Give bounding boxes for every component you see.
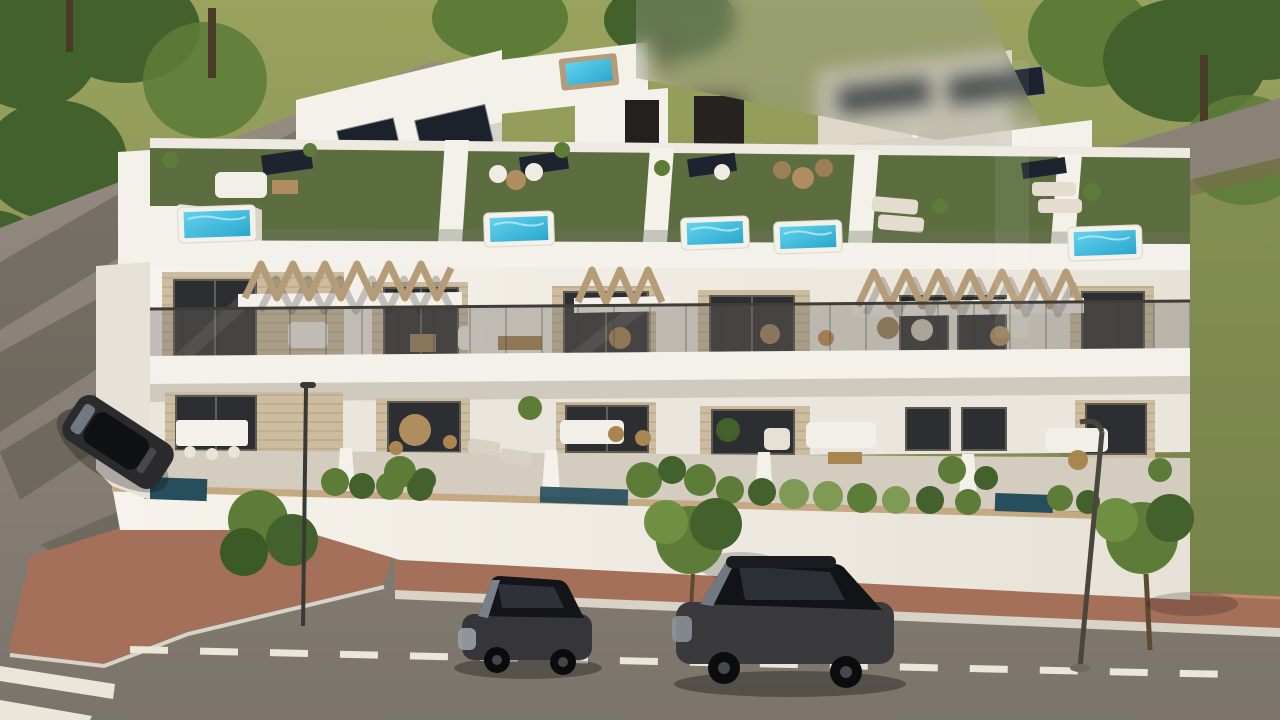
rattan-chair [773, 161, 791, 179]
potted-plant [554, 142, 570, 158]
potted-plant [932, 198, 948, 214]
spa-pool [483, 211, 554, 247]
car-side-windows [498, 584, 564, 608]
tree-trunk [208, 8, 216, 78]
outdoor-sofa [806, 422, 876, 448]
chair [525, 163, 543, 181]
tree-trunk [664, 34, 670, 72]
car-shadow [454, 657, 602, 679]
chair [206, 448, 218, 460]
wheel-hub [558, 657, 568, 667]
tree-trunk [66, 0, 73, 52]
car-front-bumper [672, 616, 692, 642]
spa-pool [773, 220, 842, 254]
wheel-hub [718, 662, 730, 674]
dining-table [176, 420, 248, 446]
car-shadow [674, 671, 906, 697]
sun-lounger [1038, 199, 1082, 213]
plunge-pool [995, 493, 1054, 513]
lamp-base [1070, 664, 1090, 672]
chair [443, 435, 457, 449]
window-glass [962, 408, 1006, 450]
round-table [506, 170, 526, 190]
plunge-pool [540, 486, 629, 505]
wheel-hub [492, 655, 502, 665]
spa-pool [680, 216, 749, 250]
wheel-hub [840, 666, 852, 678]
rooftop-hot-tub [558, 53, 619, 91]
chair [608, 426, 624, 442]
round-table [399, 414, 431, 446]
window-glass [906, 408, 950, 450]
potted-plant [1083, 183, 1101, 201]
spa-pool [1067, 225, 1142, 262]
chair [228, 446, 240, 458]
spa-pool [177, 205, 256, 244]
chair [714, 164, 730, 180]
chair [389, 441, 403, 455]
coffee-table [828, 452, 862, 464]
car-body [462, 614, 592, 660]
render-scene [0, 0, 1280, 720]
potted-plant [162, 152, 178, 168]
chair [635, 430, 651, 446]
outdoor-sofa [215, 172, 267, 198]
car-roof [726, 556, 836, 568]
rattan-chair [815, 159, 833, 177]
chair [184, 446, 196, 458]
tree-shadow [1146, 592, 1238, 616]
coffee-table [272, 180, 298, 194]
round-table [1068, 450, 1088, 470]
scene-canvas [0, 0, 1280, 720]
round-table [792, 167, 814, 189]
light-flare [995, 60, 1029, 338]
sun-lounger [1032, 182, 1076, 196]
lamp-head [300, 382, 316, 388]
potted-plant [654, 160, 670, 176]
chair [489, 165, 507, 183]
car-front-bumper [458, 628, 476, 650]
potted-plant [303, 143, 317, 157]
armchair [764, 428, 790, 450]
car-body [676, 602, 894, 664]
